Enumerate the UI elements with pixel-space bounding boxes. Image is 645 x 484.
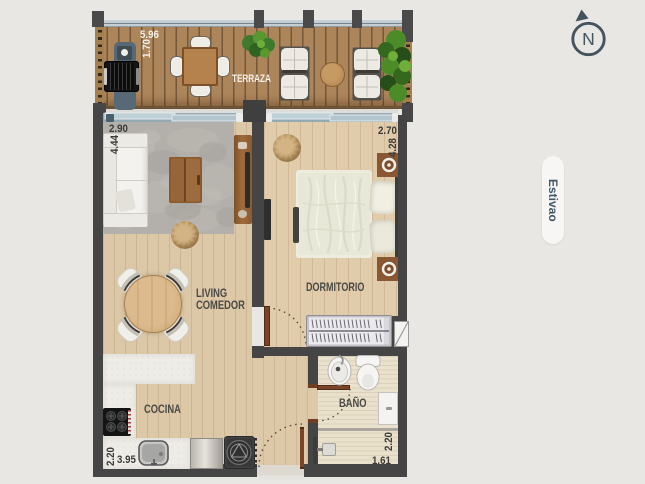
svg-text:N: N [582, 29, 595, 49]
